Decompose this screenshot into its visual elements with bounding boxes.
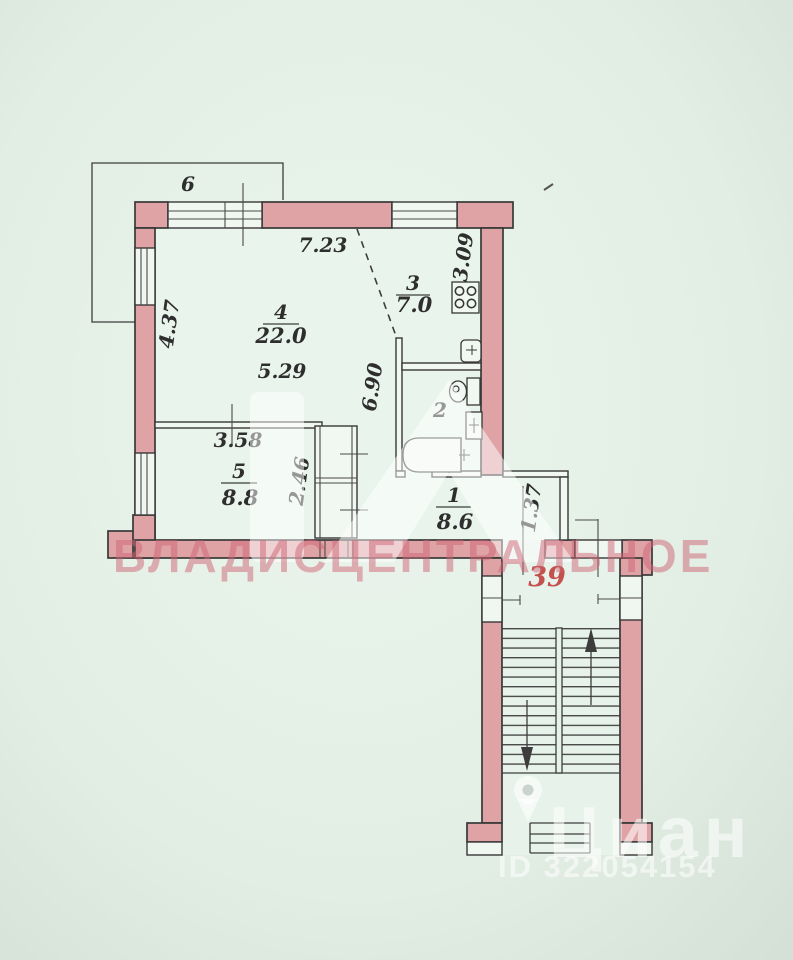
room-living-area: 22.0	[254, 323, 307, 348]
watermark-listing-id: ID 322054154	[498, 849, 717, 884]
kitchen-window	[392, 202, 457, 228]
room-kitchen-area: 7.0	[396, 292, 433, 317]
floor-plan: 6 7.23 3.09 4.37 4 22.0 5.29 3 7.0 6.90 …	[0, 0, 793, 960]
dim-living-width: 7.23	[299, 233, 348, 257]
left-window-lower	[135, 453, 155, 515]
left-window-upper	[135, 248, 155, 305]
balcony-number-label: 6	[181, 172, 195, 196]
stove-icon	[452, 282, 479, 313]
dim-living-width-inner: 5.29	[258, 359, 307, 383]
kitchen-sink-icon	[461, 340, 481, 362]
stair-divider	[556, 628, 562, 773]
floor-plan-page: 6 7.23 3.09 4.37 4 22.0 5.29 3 7.0 6.90 …	[0, 0, 793, 960]
room-living-number: 4	[274, 300, 288, 324]
room-bedroom-number: 5	[232, 459, 246, 483]
watermark-agency-text: ВЛАДИСЦЕНТРАЛЬНОЕ	[113, 530, 713, 582]
